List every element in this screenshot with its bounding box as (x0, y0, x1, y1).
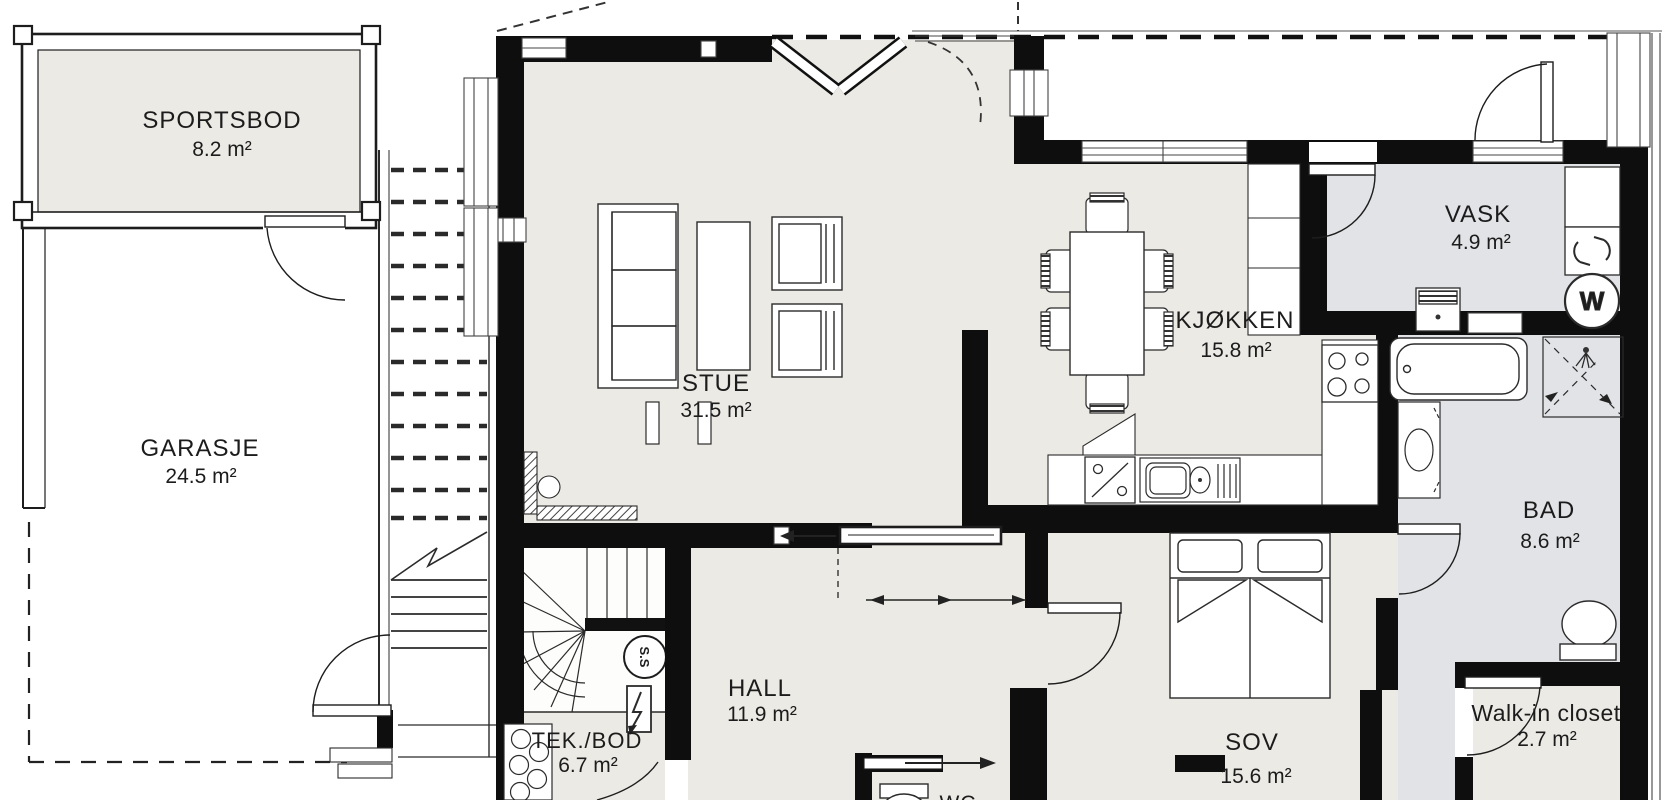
area-hall: 11.9 m² (727, 703, 797, 726)
label-garasje: GARASJE (140, 435, 259, 462)
wall-stue-kjokken (962, 330, 988, 505)
pillow (1178, 540, 1242, 572)
label-tek: TEK./BOD (532, 728, 643, 753)
post (362, 202, 380, 220)
area-sportsbod: 8.2 m² (192, 138, 252, 161)
area-tek: 6.7 m² (558, 754, 618, 777)
kitchen-sink (1140, 458, 1240, 502)
washing-machine-label: W (1580, 286, 1605, 316)
label-hall: HALL (728, 675, 792, 702)
label-walkin: Walk-in closet (1471, 700, 1620, 726)
coffee-table (697, 222, 750, 370)
sofa (598, 204, 678, 388)
toilet (1560, 601, 1616, 660)
label-bad: BAD (1523, 497, 1575, 524)
area-sov: 15.6 m² (1220, 765, 1291, 788)
window-west-lower (464, 208, 498, 336)
vask-counter (1565, 167, 1620, 227)
washing-machine: W (1565, 274, 1619, 328)
wc-toilet (880, 784, 928, 800)
stair-landing-edge (585, 618, 667, 631)
vask-bad-niche (1468, 313, 1522, 333)
area-garasje: 24.5 m² (165, 465, 236, 488)
label-stue: STUE (682, 370, 750, 397)
window-porch-left-wall (1010, 70, 1048, 116)
armchair (772, 304, 842, 377)
wall-notch (701, 41, 716, 57)
wall-right (1620, 147, 1648, 800)
label-kjokken: KJØKKEN (1175, 307, 1294, 334)
wall-bad-left-bottom (1360, 690, 1382, 800)
dryer (1565, 227, 1620, 275)
wall-sov-bottom-stub (1175, 755, 1225, 772)
floor-plan-drawing: S.S (0, 0, 1670, 800)
armchair (772, 217, 842, 290)
vask-sink-cabinet (1416, 288, 1460, 331)
wall-kjokken-bottom (962, 505, 1398, 533)
dining-table (1070, 232, 1144, 375)
stove (1322, 345, 1378, 402)
area-walkin: 2.7 m² (1517, 728, 1577, 751)
entry-door-threshold (1309, 142, 1377, 162)
wall-bad-left-lower (1376, 598, 1398, 690)
bathtub (1390, 338, 1527, 400)
wall-left (496, 36, 524, 800)
post (362, 26, 380, 44)
porch-column (1607, 33, 1650, 147)
area-bad: 8.6 m² (1520, 530, 1580, 553)
double-bed (1170, 533, 1330, 698)
stair-marker-label: S.S (637, 647, 652, 668)
area-vask: 4.9 m² (1451, 231, 1511, 254)
label-wc: WC (940, 792, 977, 800)
wall-sov-left-upper (1025, 533, 1048, 608)
floor-bad-corridor (1398, 686, 1455, 800)
area-kjokken: 15.8 m² (1200, 339, 1271, 362)
wall-vask-left (1300, 150, 1327, 335)
window-stue-top (522, 38, 566, 58)
vask-door-threshold (1473, 141, 1563, 162)
bathroom-vanity (1398, 402, 1440, 498)
pillow (1258, 540, 1322, 572)
dishwasher (1085, 457, 1135, 503)
wall-stair-right (665, 548, 691, 760)
label-sportsbod: SPORTSBOD (142, 107, 301, 134)
post (14, 26, 32, 44)
wall-closet-left-bottom (1455, 757, 1473, 800)
label-sov: SOV (1225, 729, 1279, 756)
label-vask: VASK (1445, 201, 1511, 228)
area-stue: 31.5 m² (680, 399, 751, 422)
window-west-upper (464, 78, 498, 206)
post (14, 202, 32, 220)
wall-sov-left-lower (1010, 688, 1047, 800)
floor-plan: S.S (0, 0, 1670, 800)
window-kjokken-front (1082, 141, 1247, 162)
